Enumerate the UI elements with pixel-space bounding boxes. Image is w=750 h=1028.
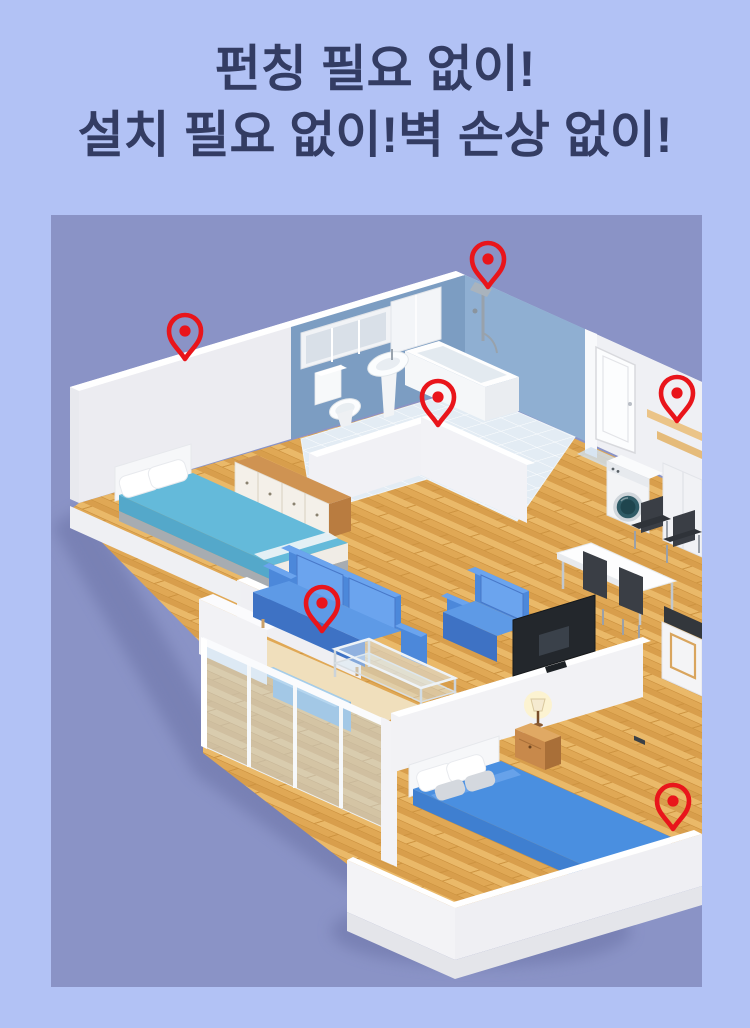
apartment-illustration	[51, 215, 702, 987]
left-wall-cap	[70, 387, 79, 503]
hallway-door	[596, 347, 635, 453]
bathroom-wall-cap	[585, 329, 597, 458]
headline-line-2: 설치 필요 없이!벽 손상 없이!	[0, 102, 750, 168]
headline: 펀칭 필요 없이! 설치 필요 없이!벽 손상 없이!	[0, 36, 750, 168]
door-knob	[628, 402, 632, 406]
headline-line-1: 펀칭 필요 없이!	[0, 36, 750, 102]
apartment-floorplan-svg	[51, 215, 702, 987]
lamp-shade	[531, 699, 545, 711]
